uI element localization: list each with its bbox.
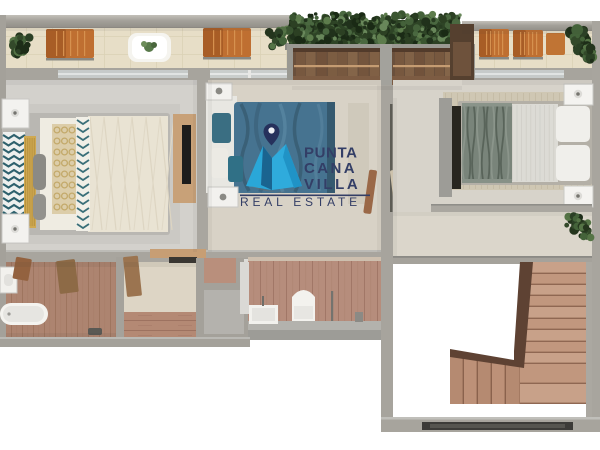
svg-text:PUNTA: PUNTA bbox=[304, 145, 358, 162]
svg-text:VILLA: VILLA bbox=[304, 176, 360, 193]
svg-text:REAL ESTATE: REAL ESTATE bbox=[240, 195, 361, 209]
svg-text:CANA: CANA bbox=[304, 160, 357, 177]
